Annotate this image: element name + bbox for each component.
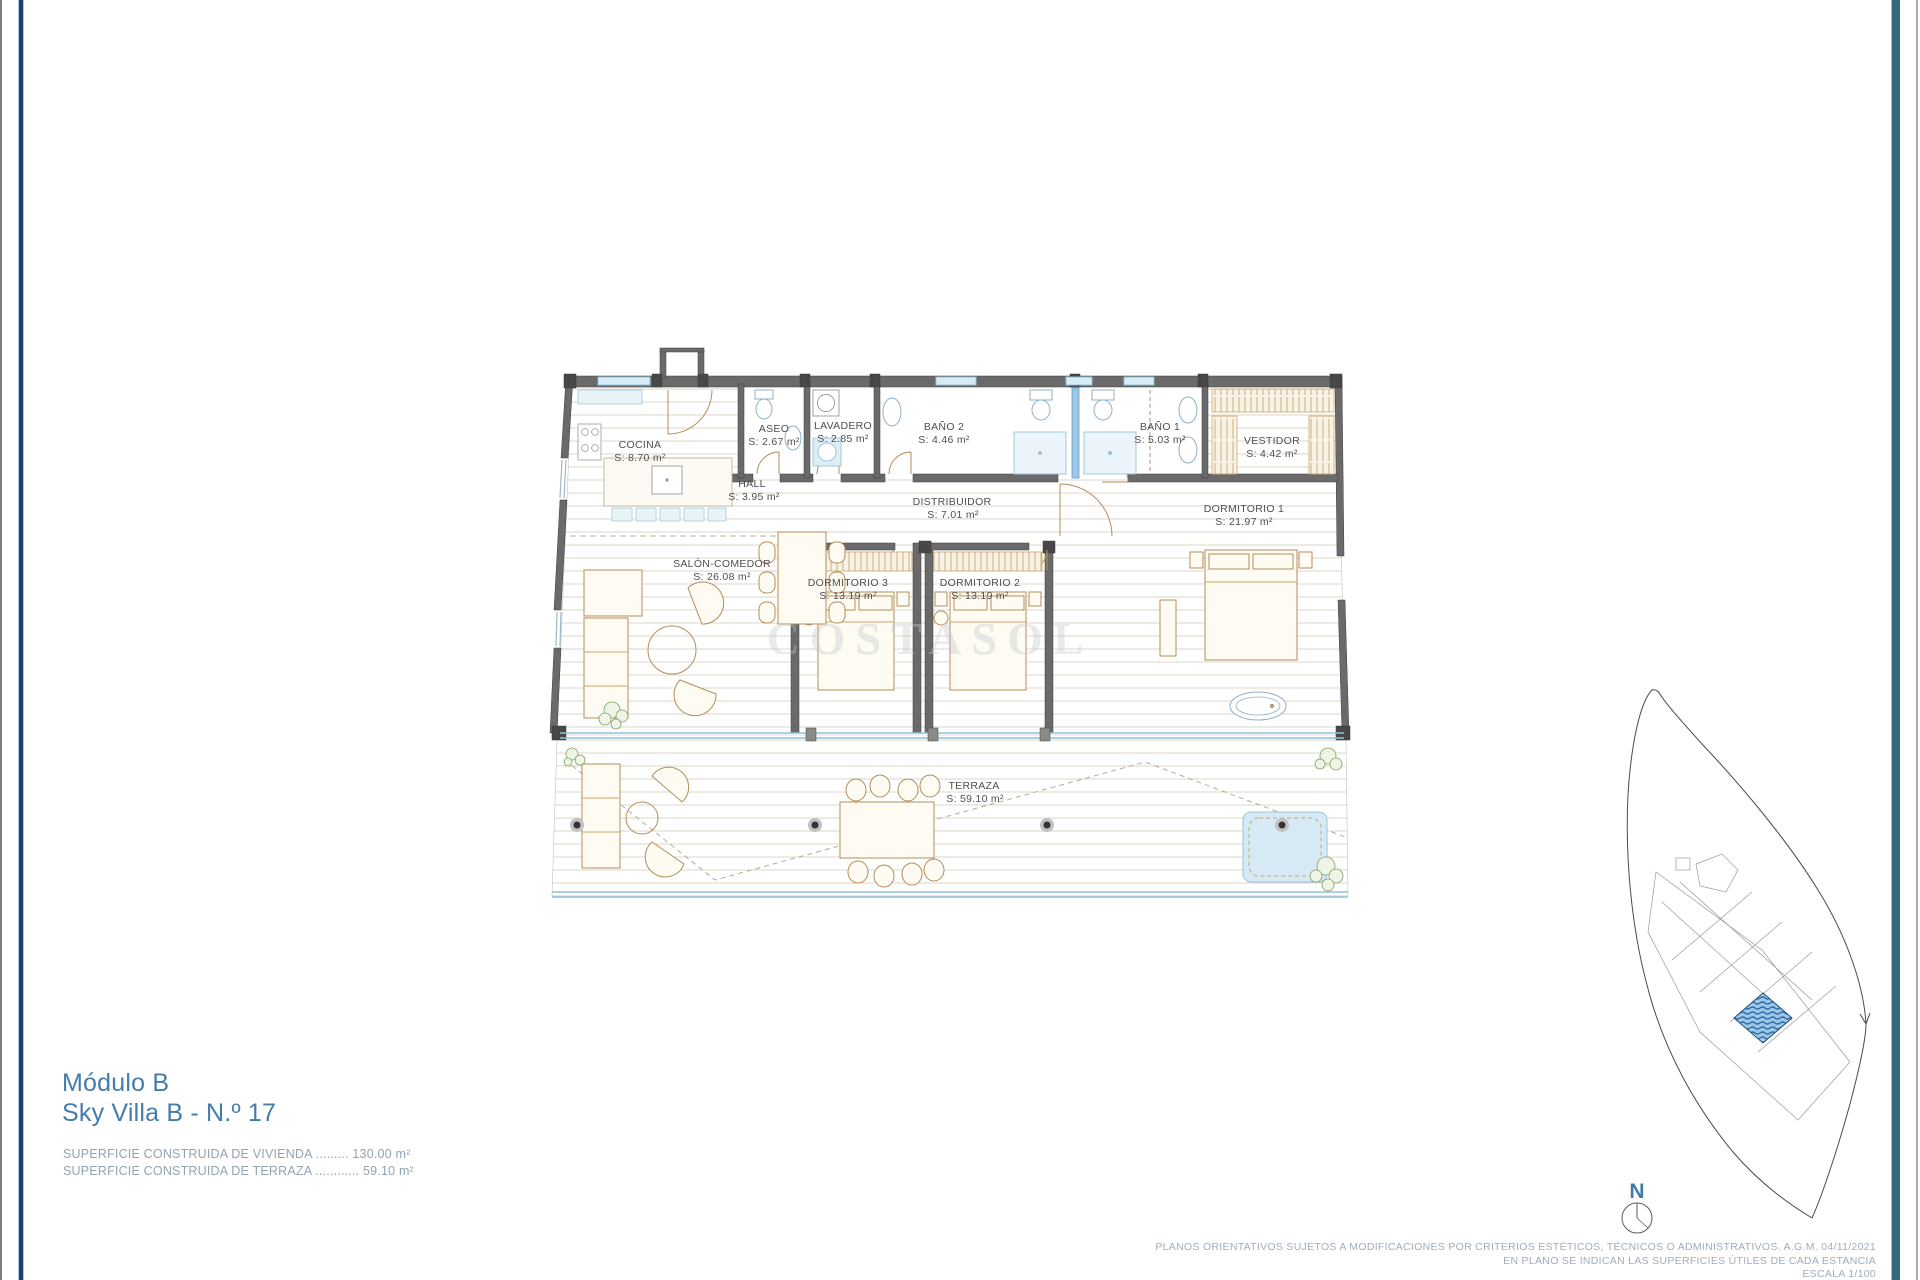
compass-label: N [1629,1180,1644,1203]
label-aseo-area: S: 2.67 m² [748,436,800,448]
label-dormitorio1: DORMITORIO 1 [1204,503,1284,515]
label-vestidor: VESTIDOR [1244,435,1300,447]
label-dormitorio1-area: S: 21.97 m² [1215,516,1273,528]
sheet-edge-right [1916,0,1918,1280]
label-distribuidor-area: S: 7.01 m² [927,509,979,521]
site-unit-highlight [1734,993,1792,1043]
label-salon: SALÓN-COMEDOR [673,557,771,570]
label-terraza: TERRAZA [948,780,999,792]
fineprint-line2: EN PLANO SE INDICAN LAS SUPERFICIES ÚTIL… [876,1255,1876,1269]
site-parcels [1648,854,1850,1120]
plan-sheet: COCINA S: 8.70 m² ASEO S: 2.67 m² LAVADE… [0,0,1920,1280]
label-dormitorio3: DORMITORIO 3 [808,577,888,589]
label-hall: HALL [738,478,765,490]
unit-title: Sky Villa B - N.º 17 [62,1098,276,1128]
site-outline [1627,690,1870,1218]
label-hall-area: S: 3.95 m² [728,491,780,503]
label-dormitorio2-area: S: 13.19 m² [951,590,1009,602]
frame-rule-left [18,0,24,1280]
label-bano1-area: S: 5.03 m² [1134,434,1186,446]
label-dormitorio2: DORMITORIO 2 [940,577,1020,589]
built-area-vivienda: SUPERFICIE CONSTRUIDA DE VIVIENDA ......… [63,1146,414,1163]
fineprint-line1: PLANOS ORIENTATIVOS SUJETOS A MODIFICACI… [876,1241,1876,1255]
floor-plan: COCINA S: 8.70 m² ASEO S: 2.67 m² LAVADE… [540,340,1370,915]
label-vestidor-area: S: 4.42 m² [1246,448,1298,460]
sheet-edge-left [0,0,2,1280]
label-cocina: COCINA [619,439,662,451]
label-distribuidor: DISTRIBUIDOR [913,496,992,508]
compass: N [1622,1180,1652,1233]
label-bano1: BAÑO 1 [1140,420,1180,433]
label-lavadero: LAVADERO [814,420,872,432]
site-plan: N [1600,670,1890,1240]
label-salon-area: S: 26.08 m² [693,571,751,583]
label-terraza-area: S: 59.10 m² [946,793,1004,805]
frame-rule-right [1891,0,1900,1280]
title-block: Módulo B Sky Villa B - N.º 17 [62,1068,276,1128]
fineprint: PLANOS ORIENTATIVOS SUJETOS A MODIFICACI… [876,1241,1876,1280]
label-dormitorio3-area: S: 13.19 m² [819,590,877,602]
label-bano2-area: S: 4.46 m² [918,434,970,446]
fineprint-scale: ESCALA 1/100 [876,1268,1876,1280]
built-area-terraza: SUPERFICIE CONSTRUIDA DE TERRAZA .......… [63,1163,414,1180]
module-title: Módulo B [62,1068,276,1098]
label-lavadero-area: S: 2.85 m² [817,433,869,445]
label-cocina-area: S: 8.70 m² [614,452,666,464]
label-aseo: ASEO [759,423,789,435]
label-bano2: BAÑO 2 [924,420,964,433]
built-area-block: SUPERFICIE CONSTRUIDA DE VIVIENDA ......… [63,1146,414,1180]
